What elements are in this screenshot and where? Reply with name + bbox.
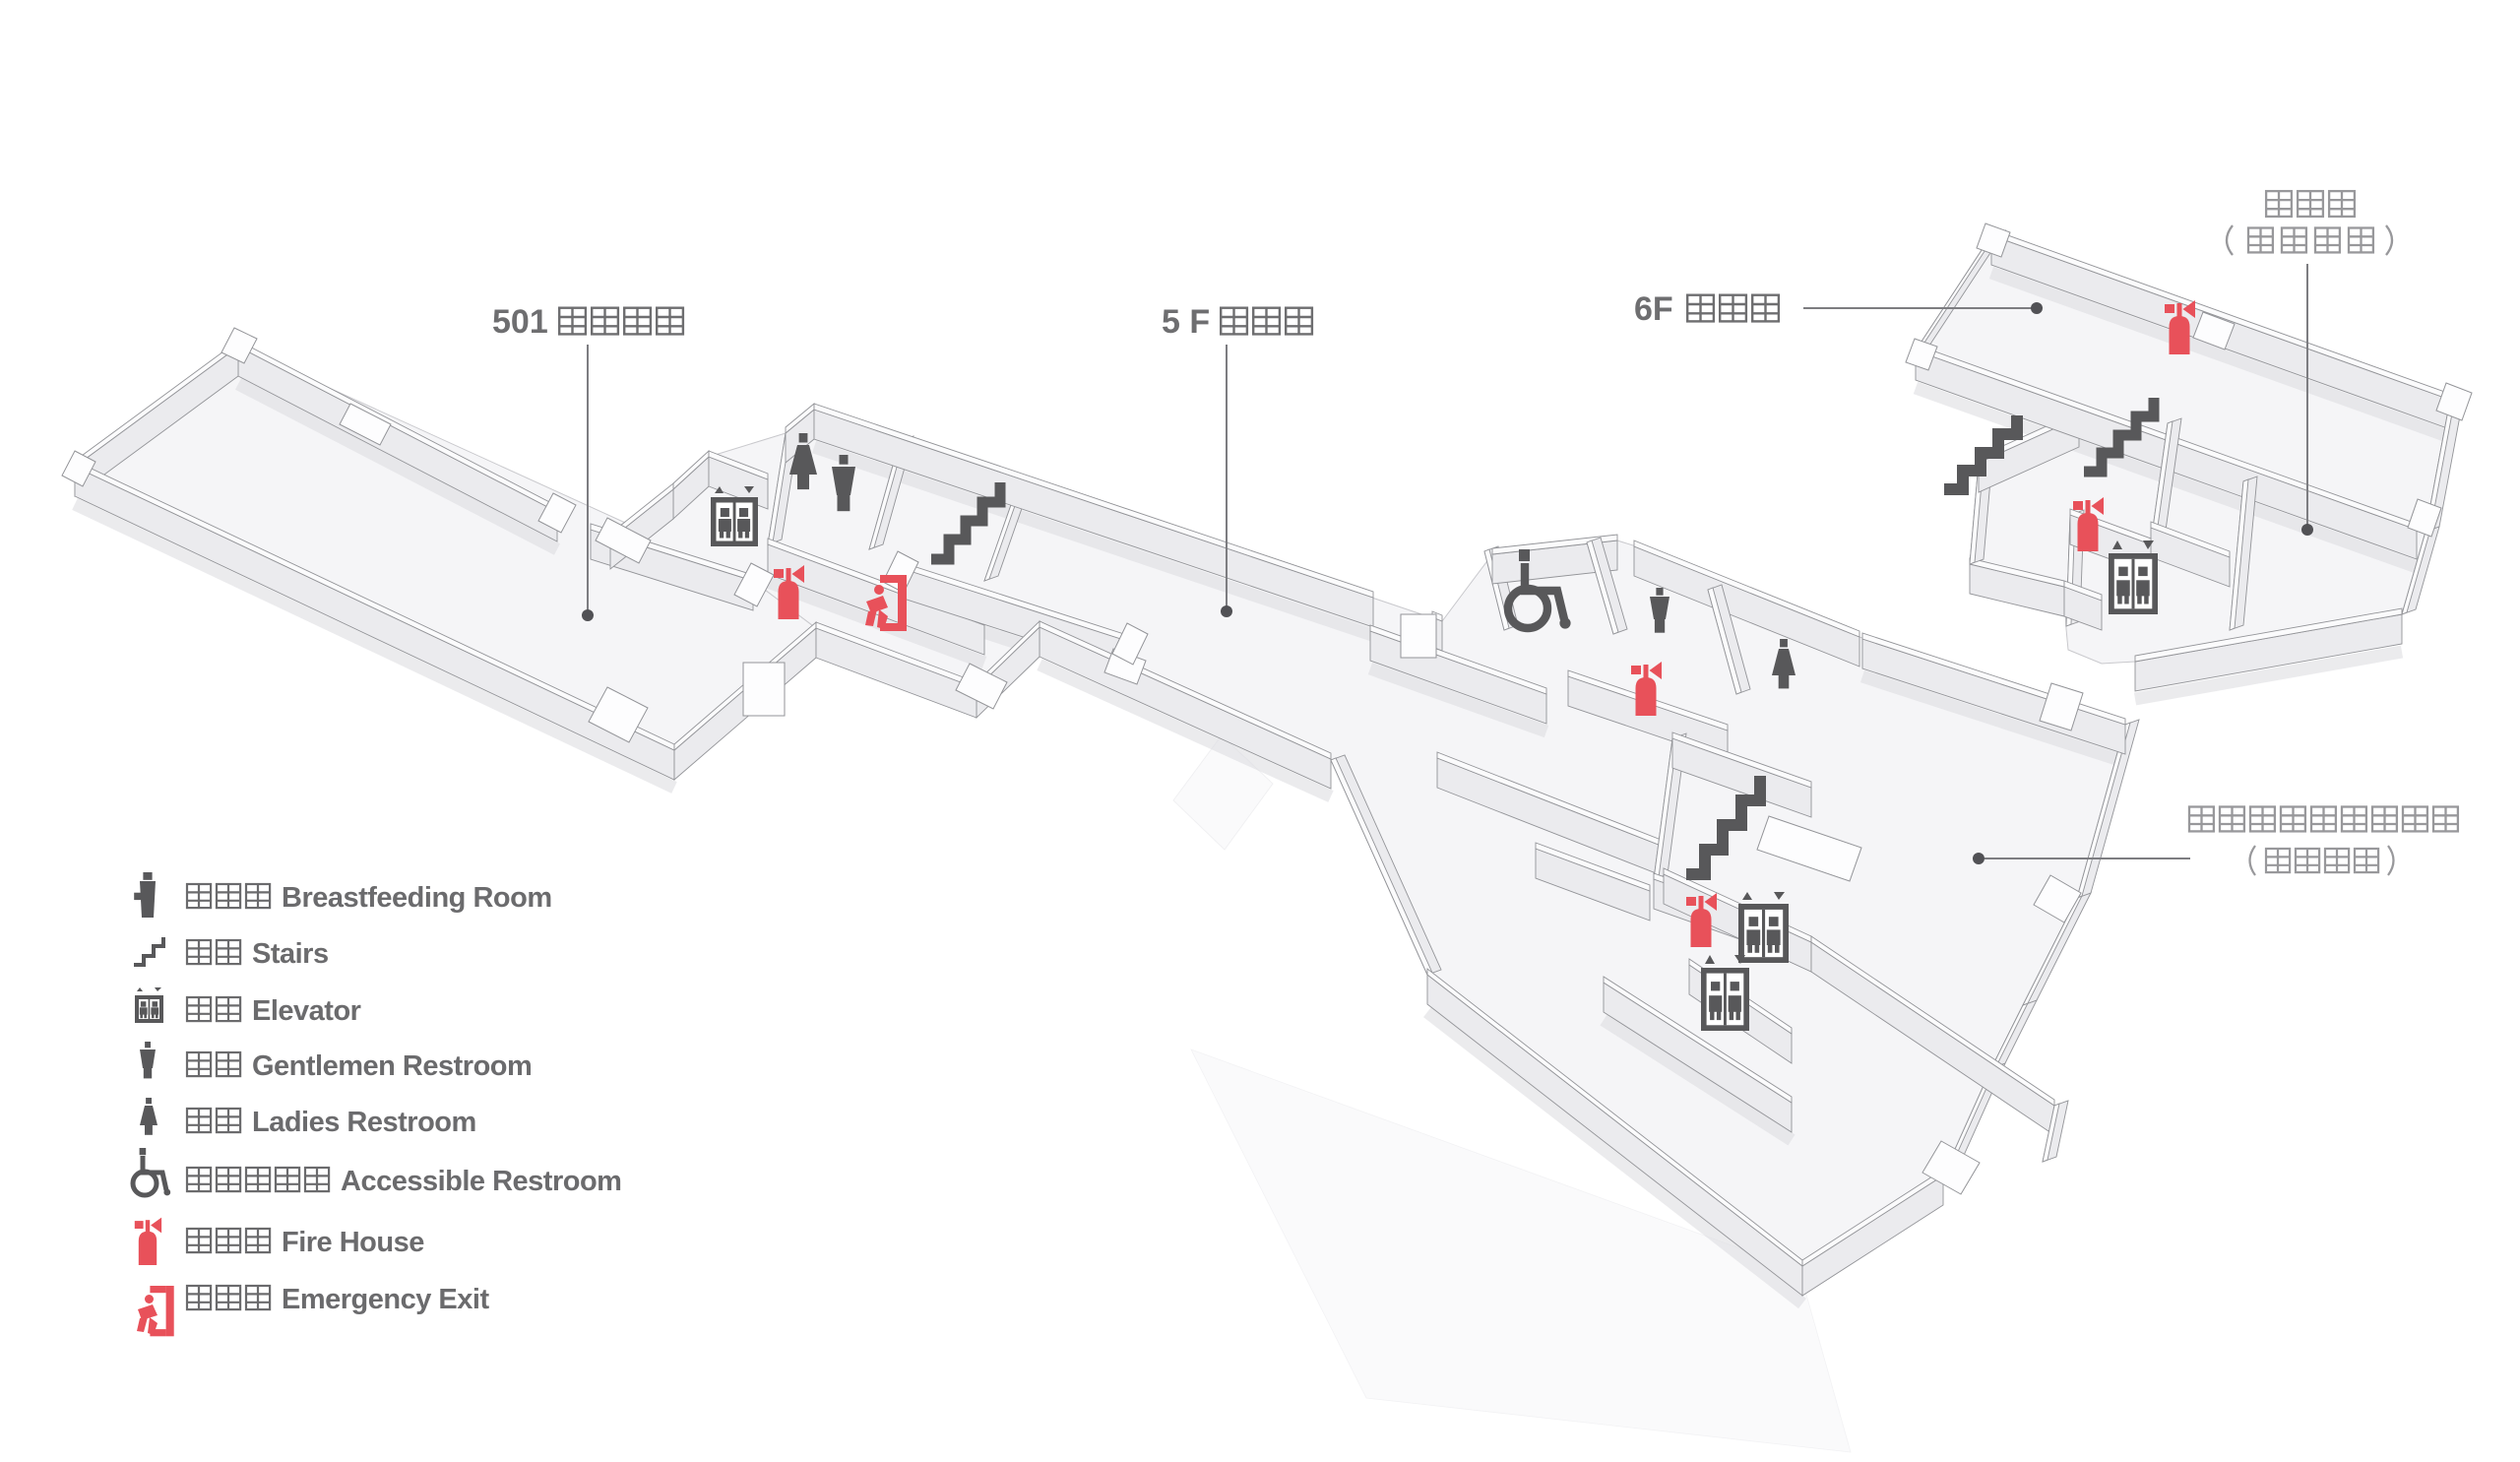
- svg-text:Elevator: Elevator: [252, 995, 361, 1027]
- svg-text:5 F: 5 F: [1162, 303, 1210, 341]
- svg-text:Emergency Exit: Emergency Exit: [282, 1284, 489, 1315]
- svg-text:Gentlemen Restroom: Gentlemen Restroom: [252, 1050, 532, 1082]
- svg-text:Accessible Restroom: Accessible Restroom: [341, 1166, 621, 1197]
- svg-text:501: 501: [492, 303, 548, 341]
- svg-text:Fire House: Fire House: [282, 1227, 424, 1258]
- svg-text:Stairs: Stairs: [252, 938, 329, 970]
- svg-text:6F: 6F: [1634, 290, 1673, 328]
- svg-text:Breastfeeding Room: Breastfeeding Room: [282, 882, 552, 914]
- svg-text:Ladies Restroom: Ladies Restroom: [252, 1107, 476, 1138]
